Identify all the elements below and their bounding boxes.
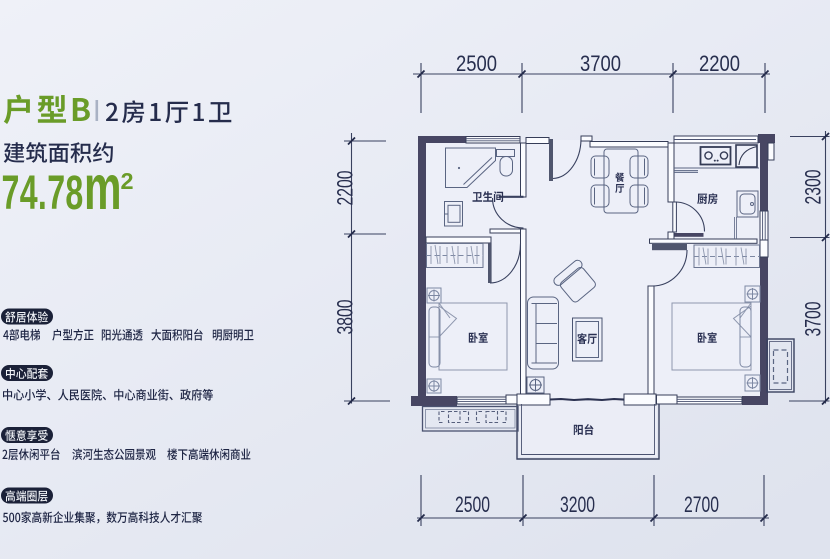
svg-text:2500: 2500	[455, 492, 490, 517]
svg-text:2700: 2700	[684, 492, 719, 517]
svg-text:m: m	[84, 153, 122, 223]
svg-text:2200: 2200	[699, 51, 740, 76]
svg-text:3800: 3800	[333, 300, 358, 335]
svg-text:3700: 3700	[801, 302, 826, 337]
svg-text:2200: 2200	[333, 171, 358, 206]
svg-text:74.78: 74.78	[2, 166, 84, 220]
svg-text:2300: 2300	[801, 170, 826, 205]
svg-text:2500: 2500	[456, 51, 497, 76]
svg-text:2: 2	[121, 168, 134, 194]
svg-text:3700: 3700	[580, 51, 621, 76]
svg-text:3200: 3200	[560, 492, 595, 517]
